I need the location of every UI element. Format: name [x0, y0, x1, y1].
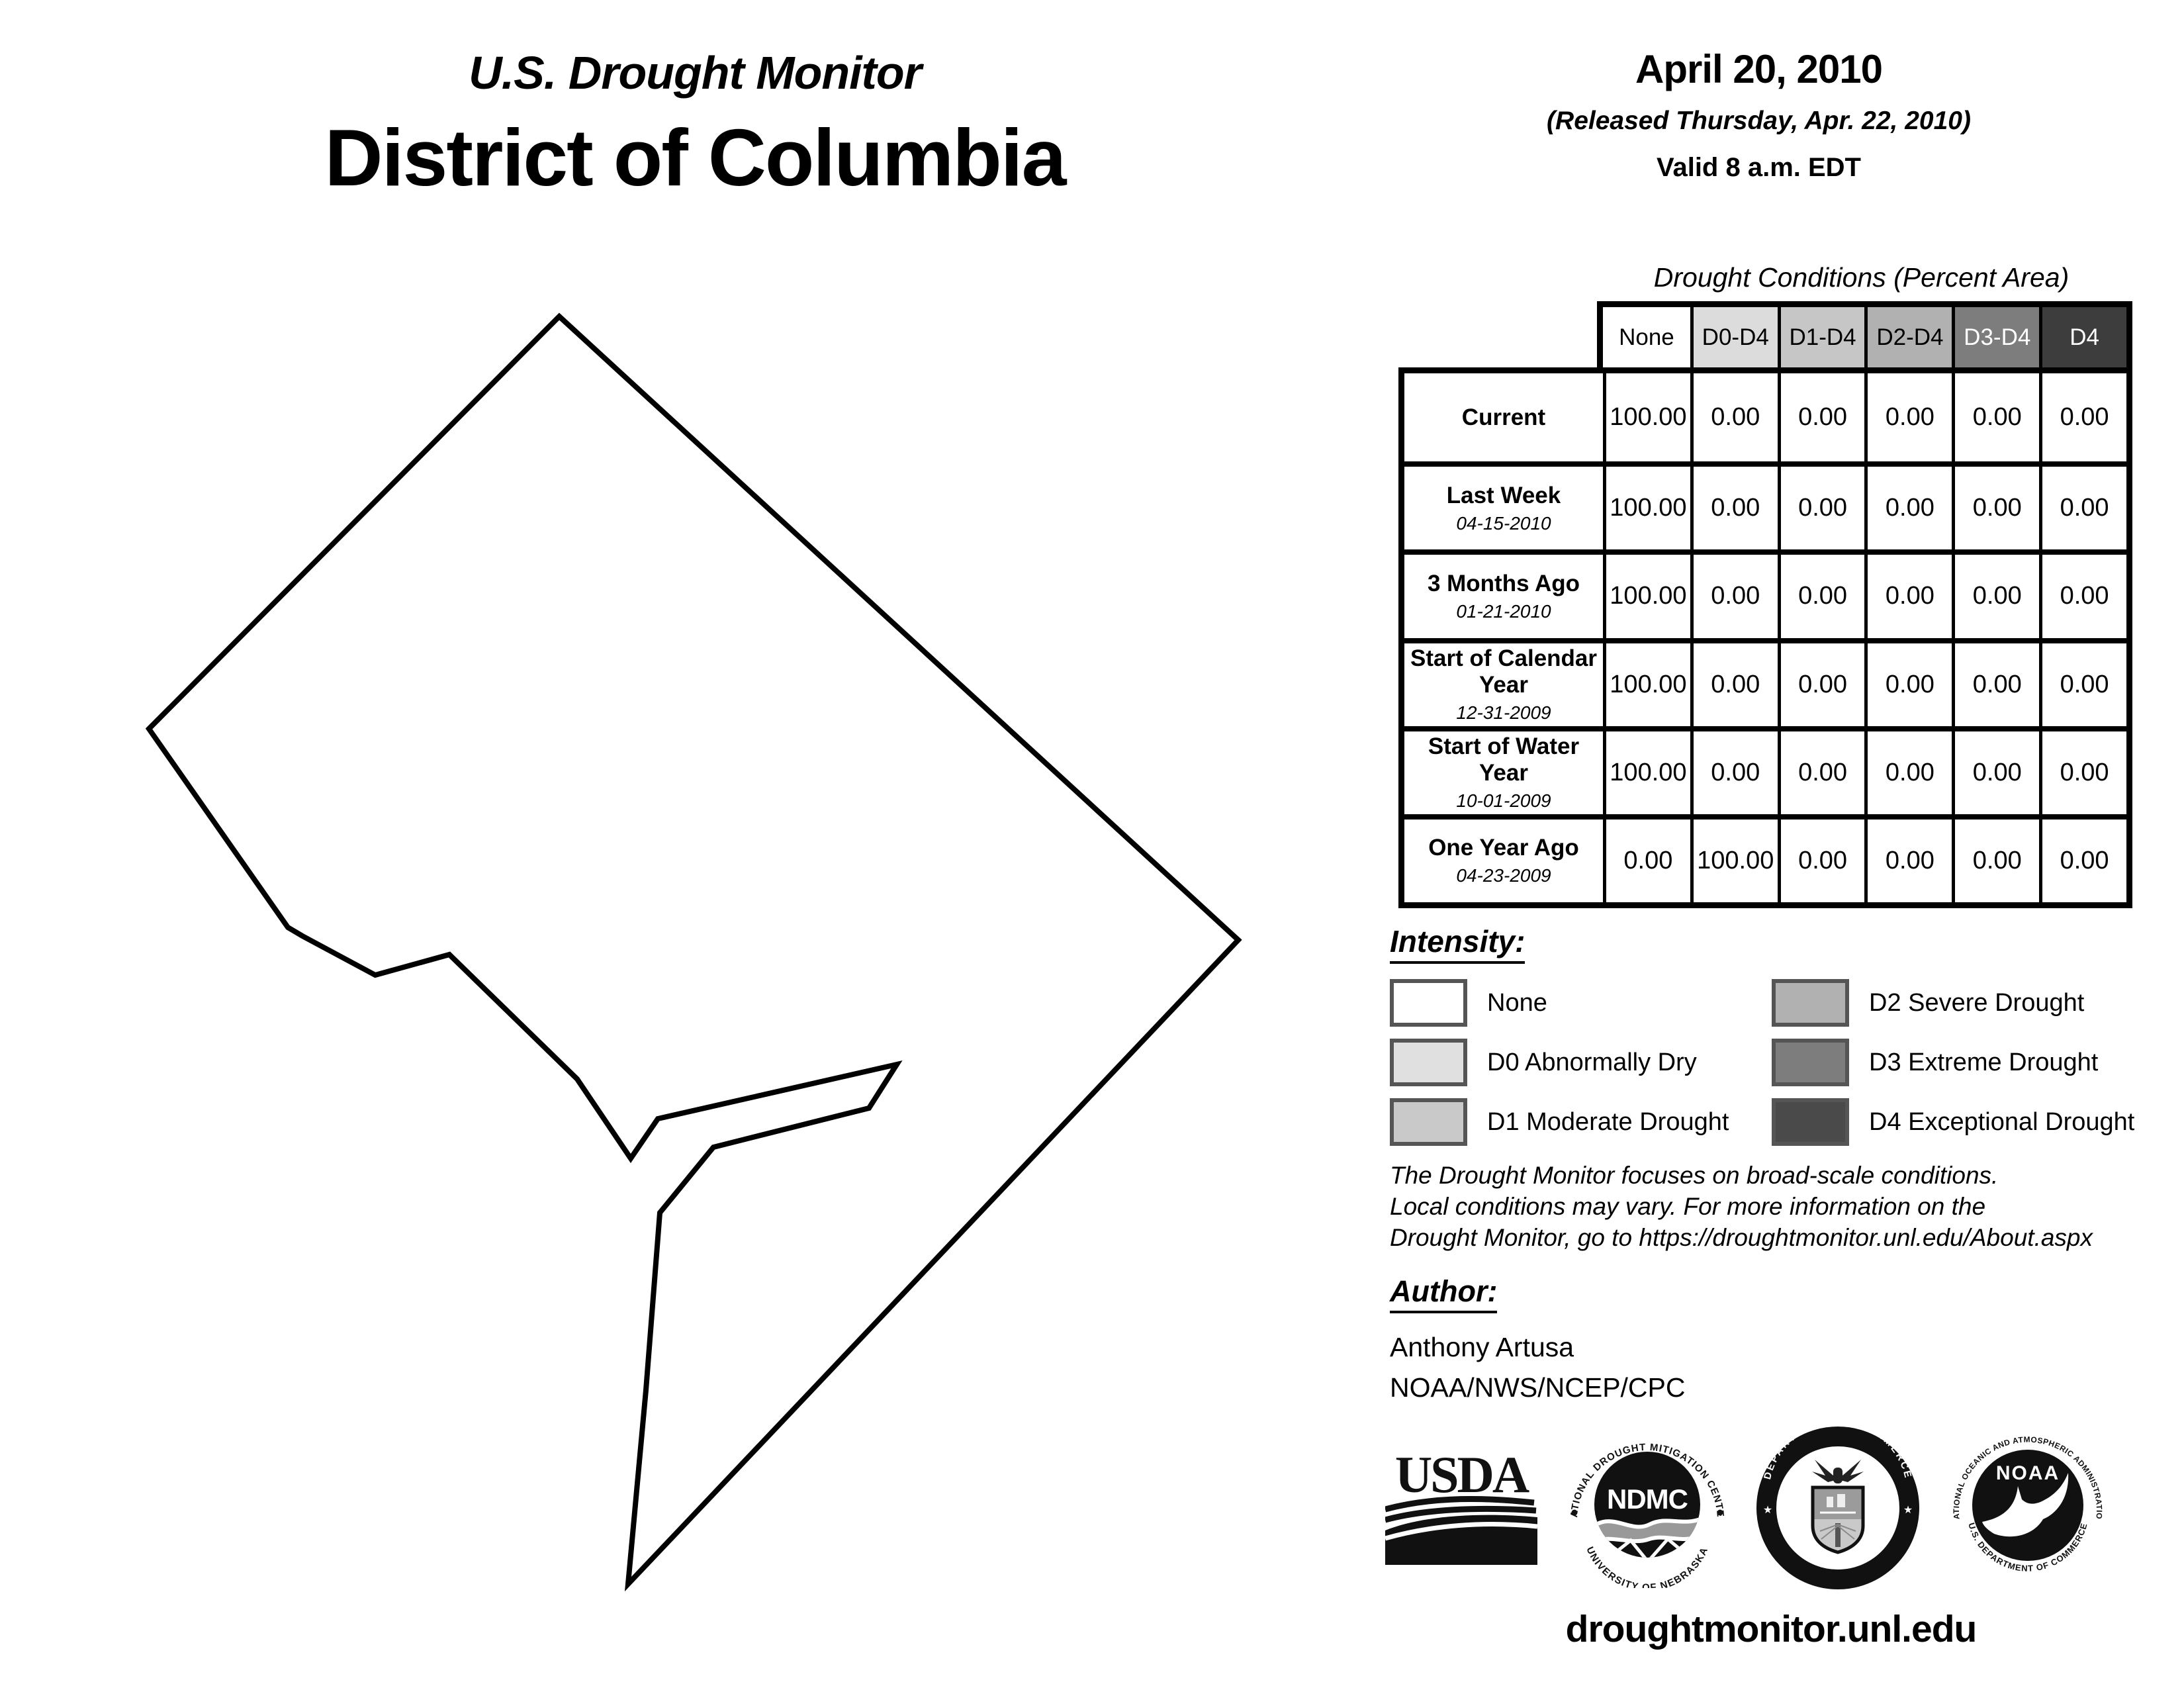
doc-star-right: ★	[1903, 1505, 1913, 1516]
percent-cell: 100.00	[1603, 726, 1690, 814]
legend-label: D0 Abnormally Dry	[1487, 1049, 1697, 1077]
drought-conditions-table: None D0-D4 D1-D4 D2-D4 D3-D4 D4 Current …	[1398, 301, 2132, 908]
legend-label: D2 Severe Drought	[1869, 989, 2084, 1017]
percent-cell: 0.00	[1690, 726, 1778, 814]
percent-cell: 0.00	[1952, 814, 2039, 902]
row-date: 10-01-2009	[1456, 790, 1551, 812]
legend-label: None	[1487, 989, 1547, 1017]
percent-cell: 0.00	[1864, 726, 1952, 814]
column-header-d0d4: D0-D4	[1690, 307, 1778, 367]
percent-cell: 0.00	[1864, 549, 1952, 637]
usda-logo: USDA	[1385, 1451, 1537, 1565]
percent-cell: 0.00	[1690, 638, 1778, 726]
percent-cell: 100.00	[1603, 549, 1690, 637]
report-title: U.S. Drought Monitor	[46, 46, 1343, 99]
report-header: U.S. Drought Monitor District of Columbi…	[46, 46, 1343, 204]
row-header-3-months-ago: 3 Months Ago 01-21-2010	[1404, 549, 1603, 637]
valid-time: Valid 8 a.m. EDT	[1390, 153, 2128, 183]
percent-cell: 0.00	[2039, 549, 2126, 637]
drought-monitor-report: U.S. Drought Monitor District of Columbi…	[0, 0, 2184, 1688]
row-header-start-water-year: Start of Water Year 10-01-2009	[1404, 726, 1603, 814]
ndmc-side-dot	[1571, 1510, 1577, 1516]
map-date: April 20, 2010	[1390, 46, 2128, 92]
legend-item-d3: D3 Extreme Drought	[1772, 1039, 2098, 1086]
legend-swatch-d3	[1772, 1039, 1849, 1086]
column-header-none: None	[1603, 307, 1690, 367]
author-org: NOAA/NWS/NCEP/CPC	[1390, 1372, 1686, 1403]
percent-cell: 0.00	[1952, 549, 2039, 637]
percent-cell: 0.00	[2039, 638, 2126, 726]
doc-star-left: ★	[1763, 1505, 1772, 1516]
disclaimer-line: The Drought Monitor focuses on broad-sca…	[1390, 1160, 2093, 1191]
row-header-one-year-ago: One Year Ago 04-23-2009	[1404, 814, 1603, 902]
legend-label: D1 Moderate Drought	[1487, 1108, 1729, 1137]
column-header-d2d4: D2-D4	[1864, 307, 1952, 367]
row-header-current: Current	[1404, 373, 1603, 461]
percent-cell: 0.00	[1952, 726, 2039, 814]
legend-item-d2: D2 Severe Drought	[1772, 979, 2084, 1027]
disclaimer-line: Drought Monitor, go to https://droughtmo…	[1390, 1222, 2093, 1253]
legend-item-d4: D4 Exceptional Drought	[1772, 1098, 2134, 1146]
disclaimer-line: Local conditions may vary. For more info…	[1390, 1191, 2093, 1222]
percent-cell: 0.00	[1864, 638, 1952, 726]
noaa-logo-text: NOAA	[1996, 1462, 2060, 1484]
table-body: Current 100.00 0.00 0.00 0.00 0.00 0.00 …	[1398, 367, 2132, 908]
percent-cell: 100.00	[1690, 814, 1778, 902]
row-date: 01-21-2010	[1456, 601, 1551, 622]
percent-cell: 100.00	[1603, 638, 1690, 726]
intensity-legend: Intensity: None D0 Abnormally Dry D1 Mod…	[1390, 923, 2138, 1149]
table-title: Drought Conditions (Percent Area)	[1588, 262, 2134, 293]
percent-cell: 0.00	[1778, 814, 1865, 902]
percent-cell: 0.00	[1778, 726, 1865, 814]
legend-label: D3 Extreme Drought	[1869, 1049, 2098, 1077]
column-header-d3d4: D3-D4	[1952, 307, 2039, 367]
noaa-logo: NATIONAL OCEANIC AND ATMOSPHERIC ADMINIS…	[1949, 1429, 2107, 1587]
row-date: 04-23-2009	[1456, 865, 1551, 886]
doc-shield	[1813, 1487, 1863, 1552]
author-heading: Author:	[1390, 1274, 1497, 1313]
row-date: 12-31-2009	[1456, 702, 1551, 724]
percent-cell: 0.00	[1778, 638, 1865, 726]
ndmc-logo: NATIONAL DROUGHT MITIGATION CENTER UNIVE…	[1567, 1428, 1727, 1588]
disclaimer-text: The Drought Monitor focuses on broad-sca…	[1390, 1160, 2093, 1253]
row-header-start-calendar-year: Start of Calendar Year 12-31-2009	[1404, 638, 1603, 726]
row-label: Start of Calendar Year	[1410, 645, 1598, 698]
column-header-d4: D4	[2039, 307, 2126, 367]
site-url: droughtmonitor.unl.edu	[1390, 1607, 2152, 1651]
percent-cell: 0.00	[1864, 373, 1952, 461]
legend-item-none: None	[1390, 979, 1547, 1027]
legend-swatch-d2	[1772, 979, 1849, 1027]
row-label: Last Week	[1447, 483, 1561, 509]
row-label: 3 Months Ago	[1428, 571, 1580, 597]
percent-cell: 0.00	[1690, 373, 1778, 461]
commerce-seal-logo: DEPARTMENT OF COMMERCE UNITED STATES OF …	[1756, 1427, 1919, 1589]
dc-map	[0, 265, 1324, 1655]
percent-cell: 0.00	[1952, 461, 2039, 549]
legend-item-d0: D0 Abnormally Dry	[1390, 1039, 1697, 1086]
percent-cell: 0.00	[1952, 373, 2039, 461]
legend-swatch-d0	[1390, 1039, 1467, 1086]
released-date: (Released Thursday, Apr. 22, 2010)	[1390, 107, 2128, 136]
date-block: April 20, 2010 (Released Thursday, Apr. …	[1390, 46, 2128, 183]
percent-cell: 0.00	[1603, 814, 1690, 902]
author-name: Anthony Artusa	[1390, 1332, 1686, 1363]
percent-cell: 0.00	[1690, 461, 1778, 549]
percent-cell: 0.00	[2039, 726, 2126, 814]
ndmc-side-dot	[1717, 1510, 1723, 1516]
legend-item-d1: D1 Moderate Drought	[1390, 1098, 1729, 1146]
legend-heading: Intensity:	[1390, 923, 1525, 964]
agency-logos: USDA NATIONAL DROUGHT MITIGATION CENTER …	[1385, 1425, 2107, 1591]
legend-swatch-none	[1390, 979, 1467, 1027]
percent-cell: 0.00	[1778, 549, 1865, 637]
percent-cell: 0.00	[2039, 373, 2126, 461]
percent-cell: 0.00	[2039, 461, 2126, 549]
ndmc-logo-text: NDMC	[1607, 1483, 1688, 1515]
row-label: Start of Water Year	[1410, 733, 1598, 786]
region-title: District of Columbia	[46, 111, 1343, 204]
dc-boundary-outline	[149, 316, 1238, 1584]
percent-cell: 100.00	[1603, 461, 1690, 549]
legend-label: D4 Exceptional Drought	[1869, 1108, 2134, 1137]
table-header-row: None D0-D4 D1-D4 D2-D4 D3-D4 D4	[1597, 301, 2132, 367]
row-date: 04-15-2010	[1456, 513, 1551, 534]
author-block: Author: Anthony Artusa NOAA/NWS/NCEP/CPC	[1390, 1274, 1686, 1403]
percent-cell: 0.00	[1778, 373, 1865, 461]
row-label: Current	[1462, 404, 1545, 431]
percent-cell: 0.00	[1864, 461, 1952, 549]
percent-cell: 0.00	[1864, 814, 1952, 902]
percent-cell: 0.00	[2039, 814, 2126, 902]
legend-swatch-d4	[1772, 1098, 1849, 1146]
legend-swatch-d1	[1390, 1098, 1467, 1146]
row-label: One Year Ago	[1428, 835, 1579, 861]
row-header-last-week: Last Week 04-15-2010	[1404, 461, 1603, 549]
percent-cell: 0.00	[1952, 638, 2039, 726]
percent-cell: 0.00	[1690, 549, 1778, 637]
percent-cell: 100.00	[1603, 373, 1690, 461]
percent-cell: 0.00	[1778, 461, 1865, 549]
column-header-d1d4: D1-D4	[1778, 307, 1865, 367]
usda-logo-text: USDA	[1395, 1451, 1529, 1503]
